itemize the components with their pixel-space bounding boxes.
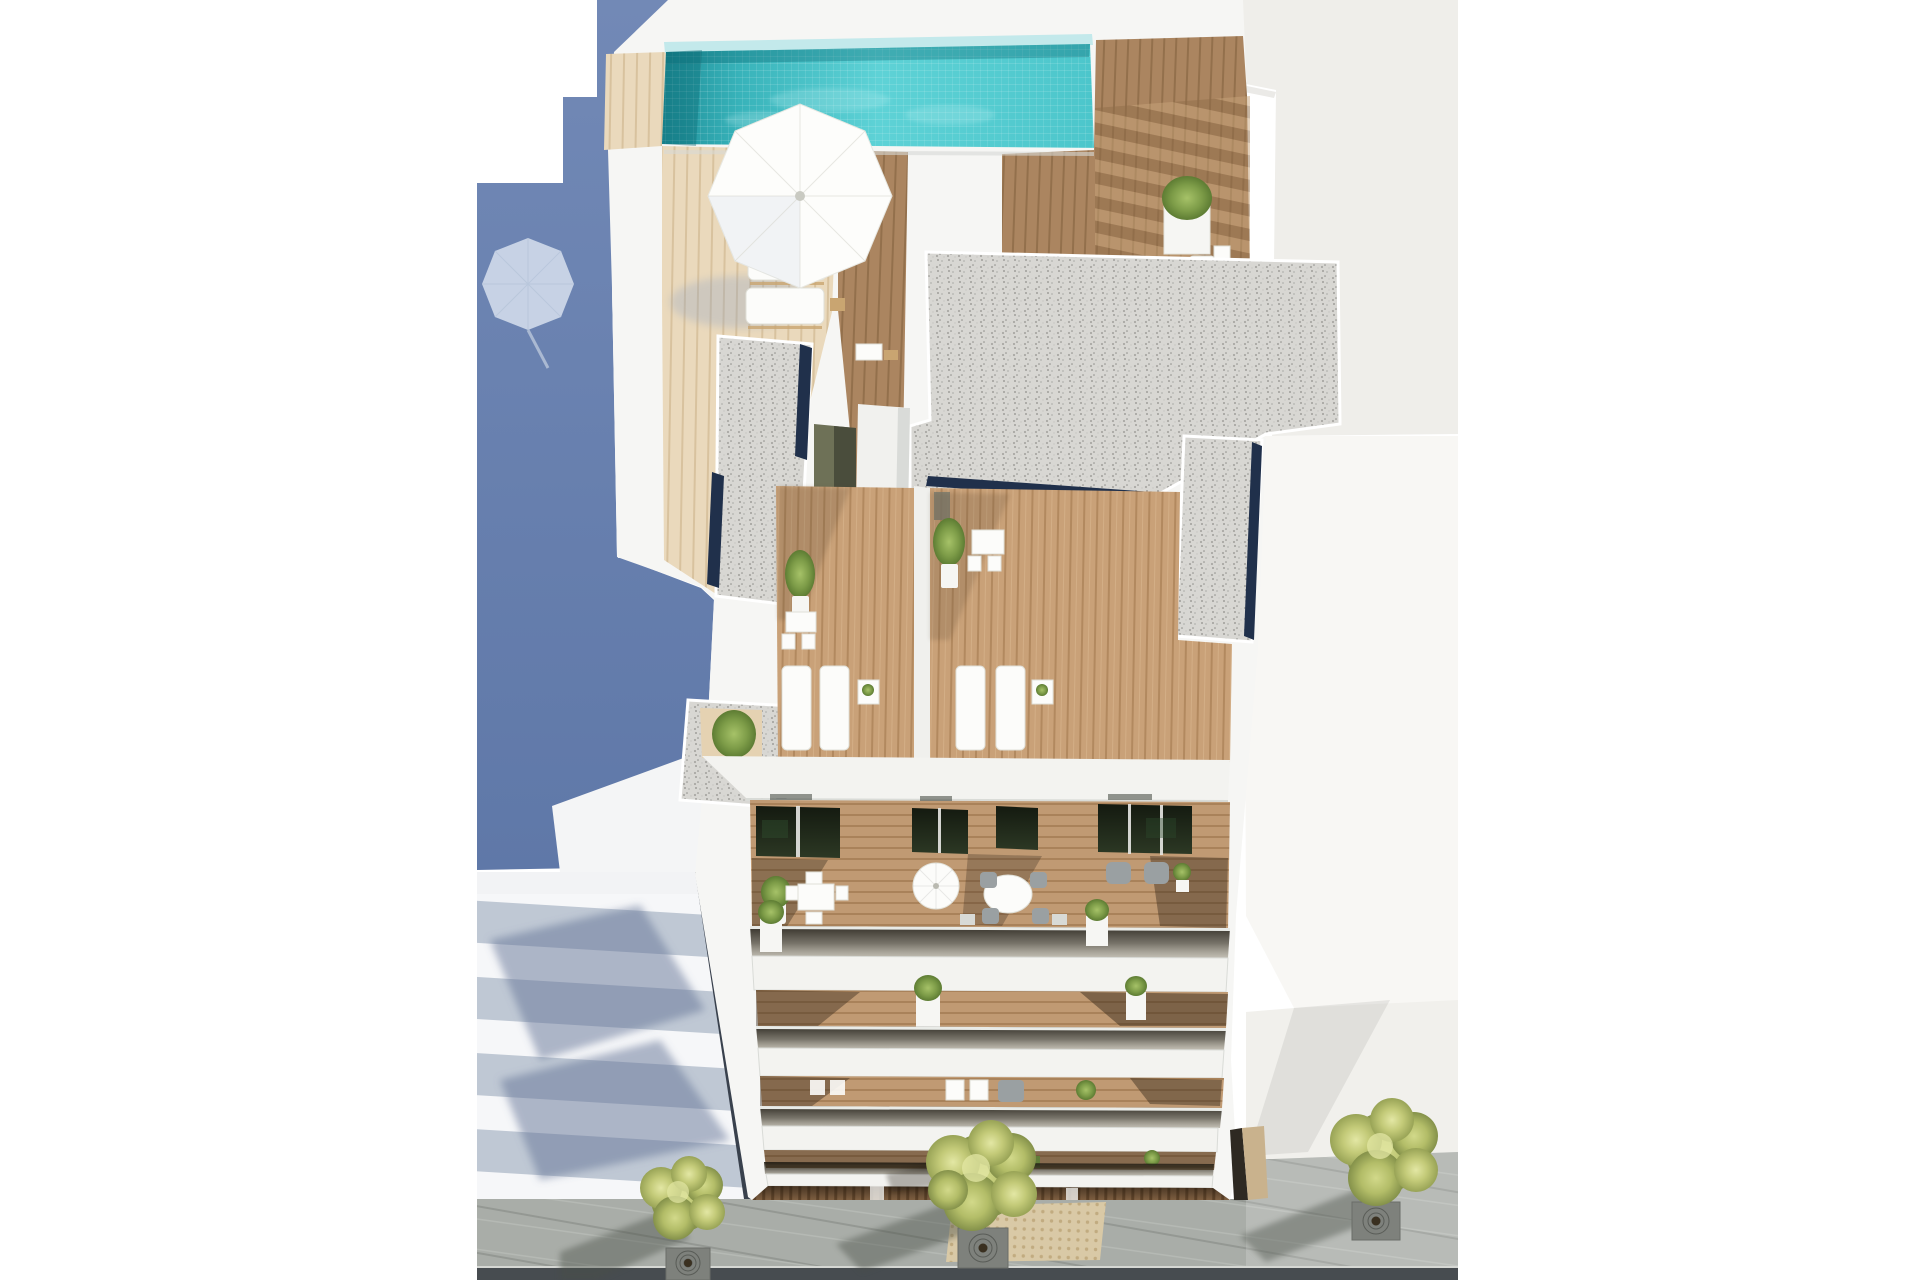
terrace-lounger xyxy=(820,666,849,750)
armchair xyxy=(1106,862,1131,884)
render-canvas xyxy=(0,0,1920,1280)
square-table xyxy=(798,884,834,910)
planter-bush xyxy=(1162,176,1212,220)
terrace-lounger xyxy=(956,666,985,750)
road xyxy=(477,1268,1458,1280)
terrace-lounger xyxy=(996,666,1025,750)
tree-trunk xyxy=(684,1259,692,1267)
glass-door xyxy=(996,806,1038,850)
balcony-slab xyxy=(752,956,1228,992)
rooftop-parasol xyxy=(708,104,892,288)
neighbor-wall xyxy=(1244,436,1458,1008)
terrace-lounger xyxy=(782,666,811,750)
ac-vent xyxy=(770,794,812,800)
pool-side-deck xyxy=(604,52,666,150)
glass-door xyxy=(1098,804,1192,854)
ac-vent xyxy=(920,796,952,801)
rooftop-pool xyxy=(662,34,1094,156)
tree-trunk xyxy=(1372,1217,1381,1226)
roof-terraces xyxy=(776,486,1232,762)
parapet-bush xyxy=(712,710,756,758)
architectural-render xyxy=(0,0,1920,1280)
ac-vent xyxy=(1108,794,1152,800)
glass-balustrade xyxy=(750,926,1230,958)
tree-trunk xyxy=(979,1244,988,1253)
balcony-floor-1 xyxy=(750,794,1230,992)
armchair xyxy=(1144,862,1169,884)
terrace-divider-wall xyxy=(914,486,930,762)
pool-steps xyxy=(662,50,702,146)
balcony-slab xyxy=(758,1048,1224,1078)
parasol-pole xyxy=(795,191,805,201)
